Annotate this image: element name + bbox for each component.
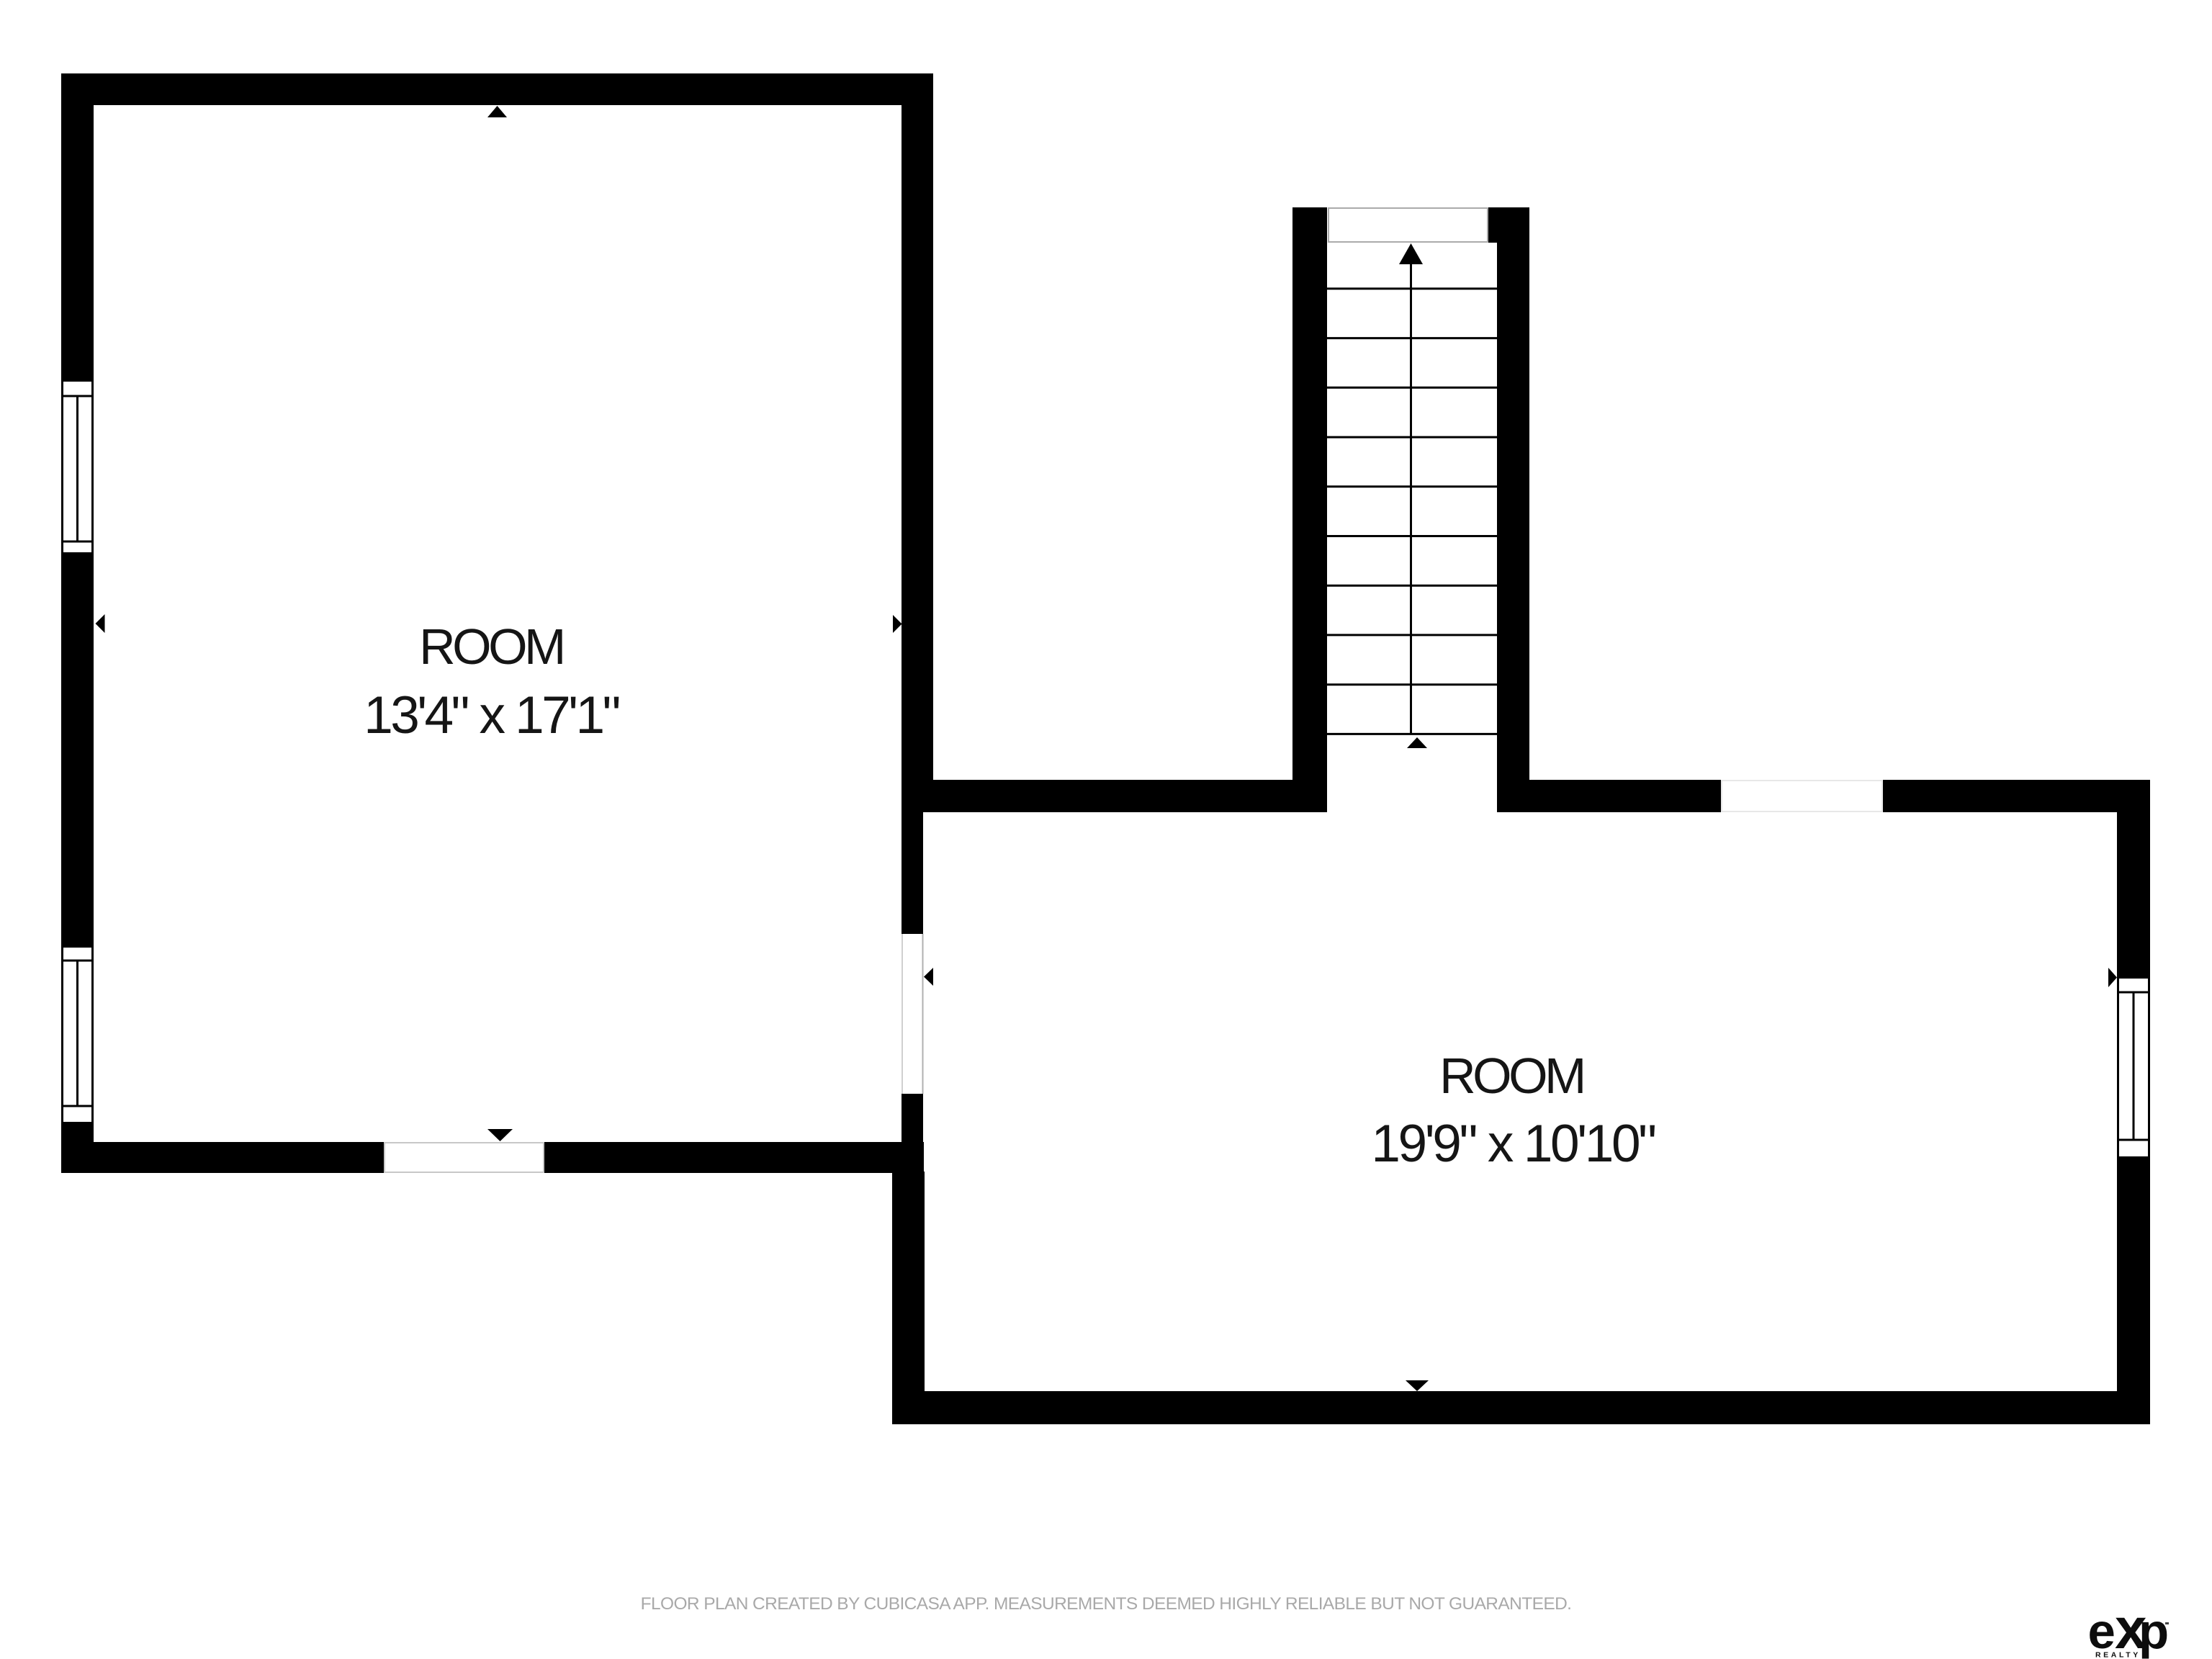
svg-text:13'4" x 17'1": 13'4" x 17'1": [364, 686, 619, 745]
svg-text:REALTY: REALTY: [2095, 1651, 2141, 1659]
svg-text:ROOM: ROOM: [1439, 1048, 1583, 1104]
svg-text:FLOOR PLAN CREATED BY CUBICASA: FLOOR PLAN CREATED BY CUBICASA APP. MEAS…: [641, 1594, 1572, 1614]
svg-text:ROOM: ROOM: [419, 619, 563, 675]
svg-text:p: p: [2139, 1604, 2169, 1659]
svg-text:19'9" x 10'10": 19'9" x 10'10": [1371, 1115, 1655, 1173]
